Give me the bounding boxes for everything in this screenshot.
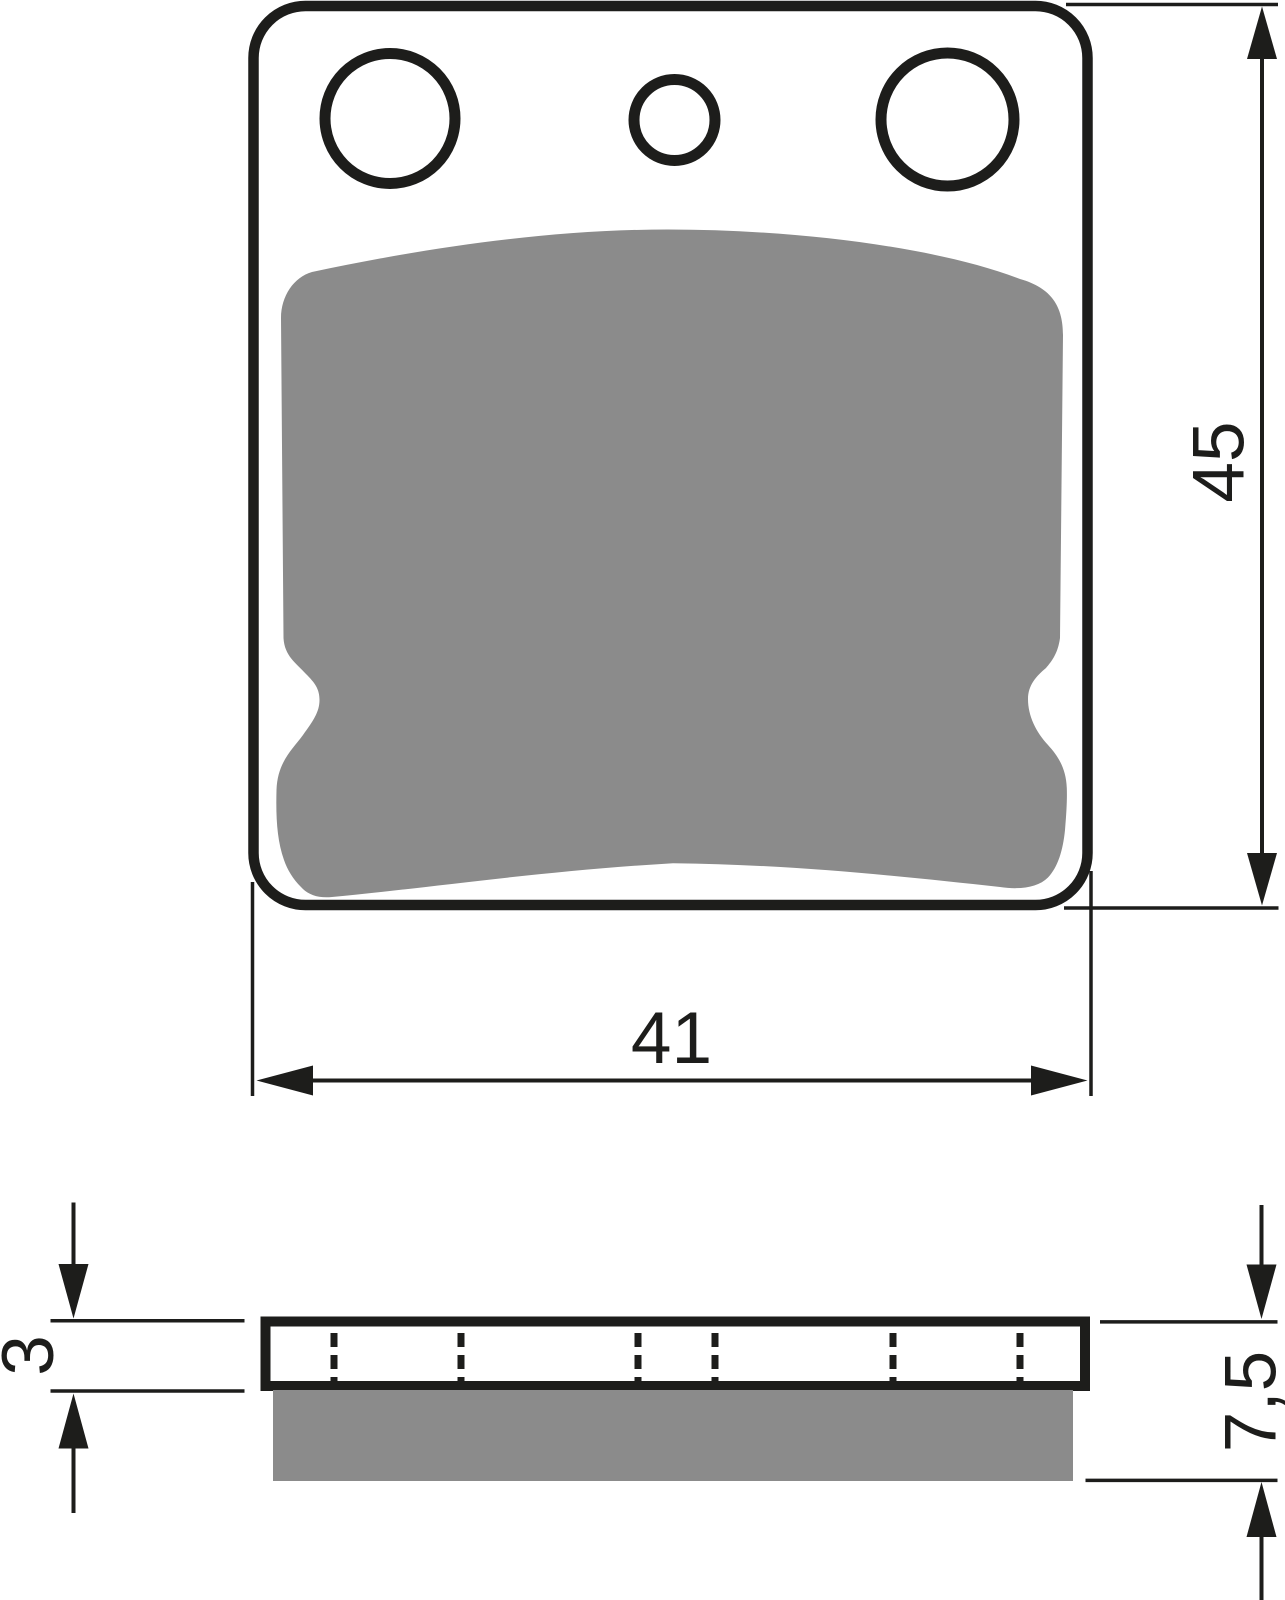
svg-text:41: 41 <box>631 998 712 1079</box>
svg-text:7,5: 7,5 <box>1211 1351 1285 1452</box>
svg-text:45: 45 <box>1179 421 1260 502</box>
svg-text:3: 3 <box>0 1335 69 1376</box>
